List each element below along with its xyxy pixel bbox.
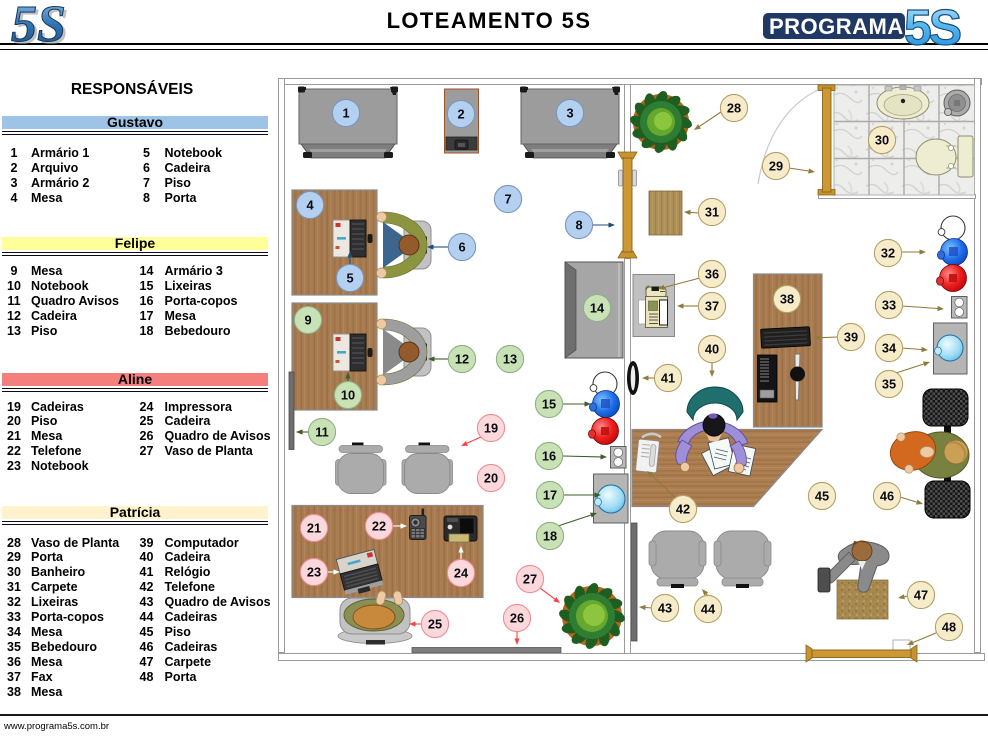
svg-text:8: 8 — [575, 218, 582, 233]
svg-text:33: 33 — [882, 298, 896, 313]
svg-text:25: 25 — [428, 617, 442, 632]
svg-text:42: 42 — [676, 502, 690, 517]
svg-text:PROGRAMA: PROGRAMA — [769, 14, 904, 39]
svg-text:19: 19 — [484, 421, 498, 436]
svg-text:44: 44 — [701, 602, 716, 617]
svg-text:5: 5 — [346, 271, 353, 286]
svg-text:9: 9 — [304, 313, 311, 328]
svg-text:14: 14 — [590, 301, 605, 316]
svg-text:34: 34 — [882, 341, 897, 356]
svg-text:26: 26 — [510, 611, 524, 626]
svg-text:1: 1 — [342, 106, 349, 121]
svg-text:43: 43 — [658, 601, 672, 616]
svg-text:22: 22 — [372, 519, 386, 534]
svg-text:5S: 5S — [904, 0, 961, 56]
svg-text:20: 20 — [484, 471, 498, 486]
svg-text:46: 46 — [880, 489, 894, 504]
svg-text:30: 30 — [875, 133, 889, 148]
svg-text:6: 6 — [458, 240, 465, 255]
svg-text:3: 3 — [566, 106, 573, 121]
svg-text:18: 18 — [543, 529, 557, 544]
svg-text:45: 45 — [815, 489, 829, 504]
svg-text:7: 7 — [504, 192, 511, 207]
svg-text:24: 24 — [454, 566, 469, 581]
svg-text:36: 36 — [705, 267, 719, 282]
svg-text:39: 39 — [844, 330, 858, 345]
svg-text:47: 47 — [914, 588, 928, 603]
svg-text:28: 28 — [727, 101, 741, 116]
svg-text:4: 4 — [306, 198, 314, 213]
svg-text:23: 23 — [307, 565, 321, 580]
svg-text:16: 16 — [542, 449, 556, 464]
svg-text:40: 40 — [705, 342, 719, 357]
svg-text:37: 37 — [705, 299, 719, 314]
svg-text:21: 21 — [307, 521, 321, 536]
svg-text:11: 11 — [315, 425, 329, 440]
svg-text:17: 17 — [543, 488, 557, 503]
svg-text:12: 12 — [455, 352, 469, 367]
svg-text:10: 10 — [341, 388, 355, 403]
svg-text:48: 48 — [942, 620, 956, 635]
svg-text:35: 35 — [882, 377, 896, 392]
svg-text:38: 38 — [780, 292, 794, 307]
svg-text:41: 41 — [661, 371, 675, 386]
svg-text:15: 15 — [542, 397, 556, 412]
svg-text:32: 32 — [881, 246, 895, 261]
svg-text:5S: 5S — [11, 0, 66, 53]
svg-text:2: 2 — [457, 107, 464, 122]
svg-text:27: 27 — [523, 572, 537, 587]
svg-text:31: 31 — [705, 205, 719, 220]
svg-text:29: 29 — [769, 159, 783, 174]
svg-text:13: 13 — [503, 352, 517, 367]
